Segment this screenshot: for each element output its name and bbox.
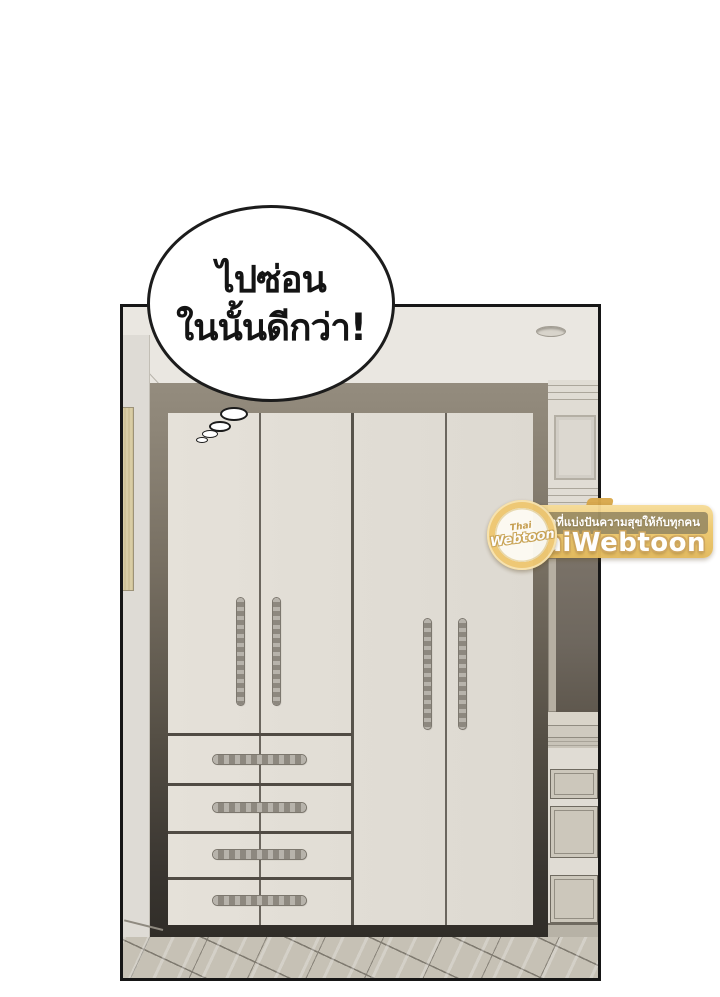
drawer-divider — [168, 783, 352, 786]
door-handle — [237, 598, 244, 705]
thought-trail-bubble — [196, 437, 208, 443]
door-divider — [259, 413, 261, 925]
logo-inner-circle: Thai Webtoon — [492, 505, 553, 566]
drawer-divider — [168, 733, 352, 736]
door-handle — [273, 598, 280, 705]
molding-line — [548, 385, 598, 386]
molding-band — [548, 726, 598, 738]
wardrobe — [150, 383, 548, 953]
wall-panel-frame — [554, 415, 596, 480]
wall-art — [121, 407, 134, 591]
mirror-panel — [556, 558, 598, 712]
thaiwebtoon-logo-icon: Thai Webtoon — [487, 500, 557, 570]
thought-bubble: ไปซ่อน ในนั้นดีกว่า! — [147, 205, 395, 402]
molding-line — [548, 399, 598, 400]
drawer-handle — [213, 896, 306, 905]
logo-word-webtoon: Webtoon — [489, 528, 555, 551]
bubble-text-line2: ในนั้นดีกว่า! — [176, 304, 366, 351]
side-drawer — [550, 806, 598, 858]
drawer-handle — [213, 755, 306, 764]
side-drawer — [550, 875, 598, 923]
molding-band — [548, 712, 598, 726]
recessed-light — [536, 326, 566, 337]
molding-line — [548, 488, 598, 489]
drawer-handle — [213, 850, 306, 859]
molding-band — [548, 738, 598, 748]
door-divider — [445, 413, 447, 925]
wardrobe-doors — [168, 413, 533, 925]
thaiwebtoon-watermark: เว็บสนุกที่แบ่งปันความสุขให้กับทุกคน Tha… — [474, 494, 720, 576]
thought-trail-bubble — [220, 407, 248, 421]
comic-page: ไปซ่อน ในนั้นดีกว่า! เว็บสนุกที่แบ่งปันค… — [0, 0, 720, 997]
bubble-text-line1: ไปซ่อน — [216, 256, 326, 303]
door-handle — [459, 619, 466, 729]
drawer-handle — [213, 803, 306, 812]
drawer-divider — [168, 877, 352, 880]
door-handle — [424, 619, 431, 729]
drawer-divider — [168, 831, 352, 834]
parquet-floor — [123, 937, 598, 978]
side-drawer — [550, 769, 598, 799]
door-divider-center — [351, 413, 354, 925]
right-wall — [548, 380, 598, 941]
molding-line — [548, 392, 598, 393]
comic-panel — [120, 304, 601, 981]
